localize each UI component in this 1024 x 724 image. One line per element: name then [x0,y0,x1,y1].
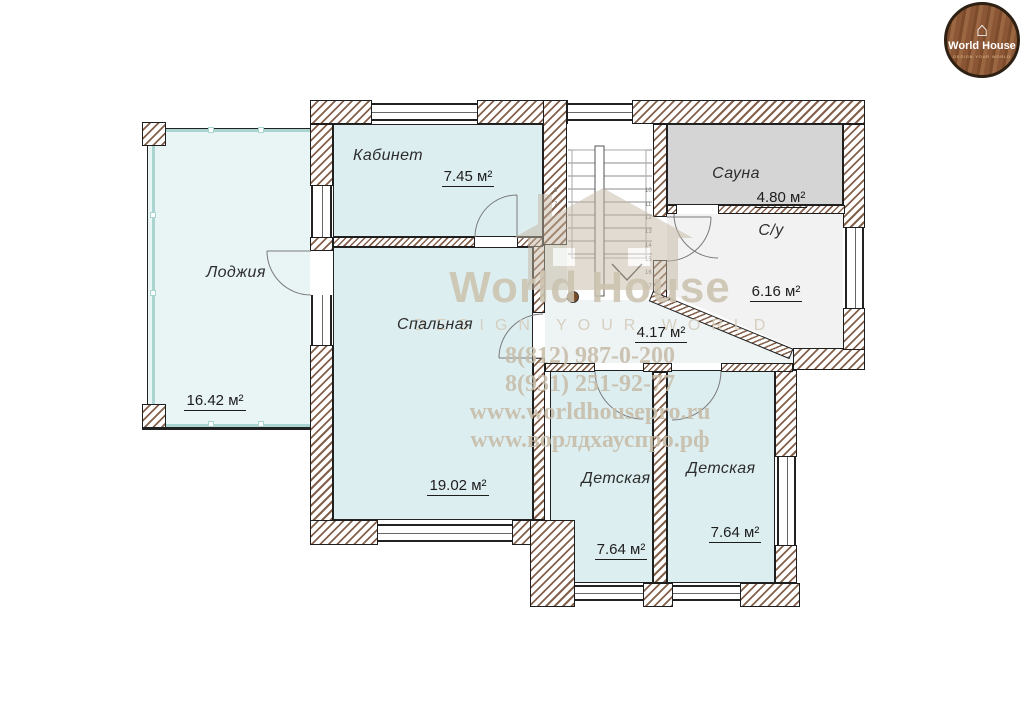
area-hall: 4.17 м² [628,324,694,342]
label-sauna: Сауна [703,164,769,184]
area-bedroom: 19.02 м² [423,477,493,495]
area-bathroom: 6.16 м² [743,283,809,301]
logo-tagline: DESIGN YOUR WORLD [953,54,1011,59]
area-loggia: 16.42 м² [180,392,250,410]
watermark-site: www.ворлдхауспро.рф [402,427,778,453]
label-office: Кабинет [348,146,428,166]
area-sauna: 4.80 м² [748,189,814,207]
label-bedroom: Спальная [393,315,477,335]
label-loggia: Лоджия [198,263,274,283]
logo-brand: World House [948,40,1016,52]
floor-plan: 871011121314151617 World House DESIGN YO… [0,0,1024,724]
area-nursery-right: 7.64 м² [702,524,768,542]
area-nursery-left: 7.64 м² [588,541,654,559]
watermark-phone: 8(931) 251-92-77 [402,371,778,397]
watermark-site: www.worldhousepro.ru [402,399,778,425]
area-office: 7.45 м² [433,168,503,186]
watermark: World House DESIGN YOUR WORLD 8(812) 987… [402,264,778,453]
watermark-brand: World House [402,264,778,312]
world-house-logo: ⌂ World House DESIGN YOUR WORLD [944,2,1020,78]
label-nursery-left: Детская [578,469,654,489]
watermark-phone: 8(812) 987-0-200 [402,343,778,369]
label-bathroom: С/у [746,221,796,241]
label-nursery-right: Детская [682,459,760,479]
house-icon: ⌂ [976,21,988,39]
